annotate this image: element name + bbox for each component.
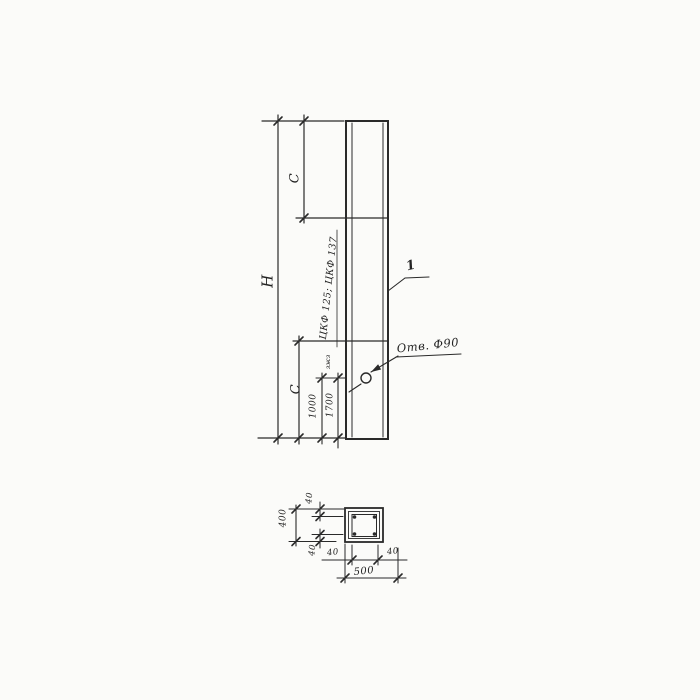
c-dim-bottom-label: С (290, 384, 303, 394)
mark-note-label: зжз (325, 355, 332, 369)
hole-leader-tail (349, 384, 361, 392)
item-leader-line (388, 277, 429, 291)
section-view (289, 502, 407, 583)
c-dim-top-label: С (289, 173, 302, 183)
cover-right-label: 40 (387, 547, 400, 557)
drawing-canvas: Н С С ЦКФ 125; ЦКФ 137 зжз 1000 1700 Отв… (0, 0, 700, 700)
column-elevation (258, 115, 461, 448)
height-dim-label: Н (261, 274, 276, 288)
drawing-linework (0, 0, 700, 700)
dim-1000-label: 1000 (310, 394, 319, 419)
section-height-label: 400 (280, 509, 289, 528)
hole-leader-arrowhead (371, 364, 381, 372)
rebar-dots (353, 515, 377, 536)
hole-circle (361, 373, 371, 383)
cover-top-label: 40 (305, 492, 315, 505)
section-width-label: 500 (353, 566, 375, 578)
cover-left-label: 40 (327, 548, 340, 558)
cover-bottom-label: 40 (308, 544, 318, 557)
dim-1700-label: 1700 (327, 393, 336, 418)
